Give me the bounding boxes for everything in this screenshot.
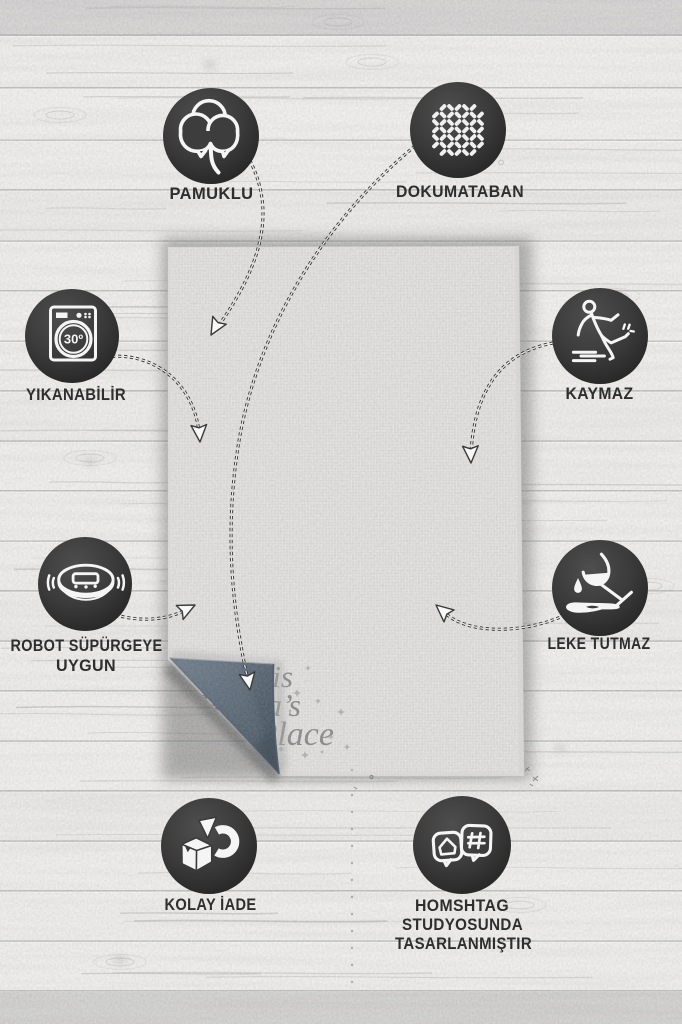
svg-text:UYGUN: UYGUN (56, 657, 116, 675)
svg-text:KOLAY İADE: KOLAY İADE (165, 896, 257, 914)
svg-text:STUDYOSUNDA: STUDYOSUNDA (402, 916, 523, 934)
svg-text:KAYMAZ: KAYMAZ (566, 385, 634, 403)
svg-text:DOKUMATABAN: DOKUMATABAN (396, 183, 524, 201)
svg-text:PAMUKLU: PAMUKLU (170, 185, 254, 203)
svg-text:LEKE TUTMAZ: LEKE TUTMAZ (548, 635, 651, 653)
svg-text:YIKANABİLİR: YIKANABİLİR (26, 386, 126, 404)
svg-text:30º: 30º (64, 332, 83, 347)
svg-text:ROBOT SÜPÜRGEYE: ROBOT SÜPÜRGEYE (11, 636, 163, 655)
svg-text:TASARLANMIŞTIR: TASARLANMIŞTIR (395, 935, 532, 953)
svg-text:HOMSHTAG: HOMSHTAG (415, 897, 509, 915)
